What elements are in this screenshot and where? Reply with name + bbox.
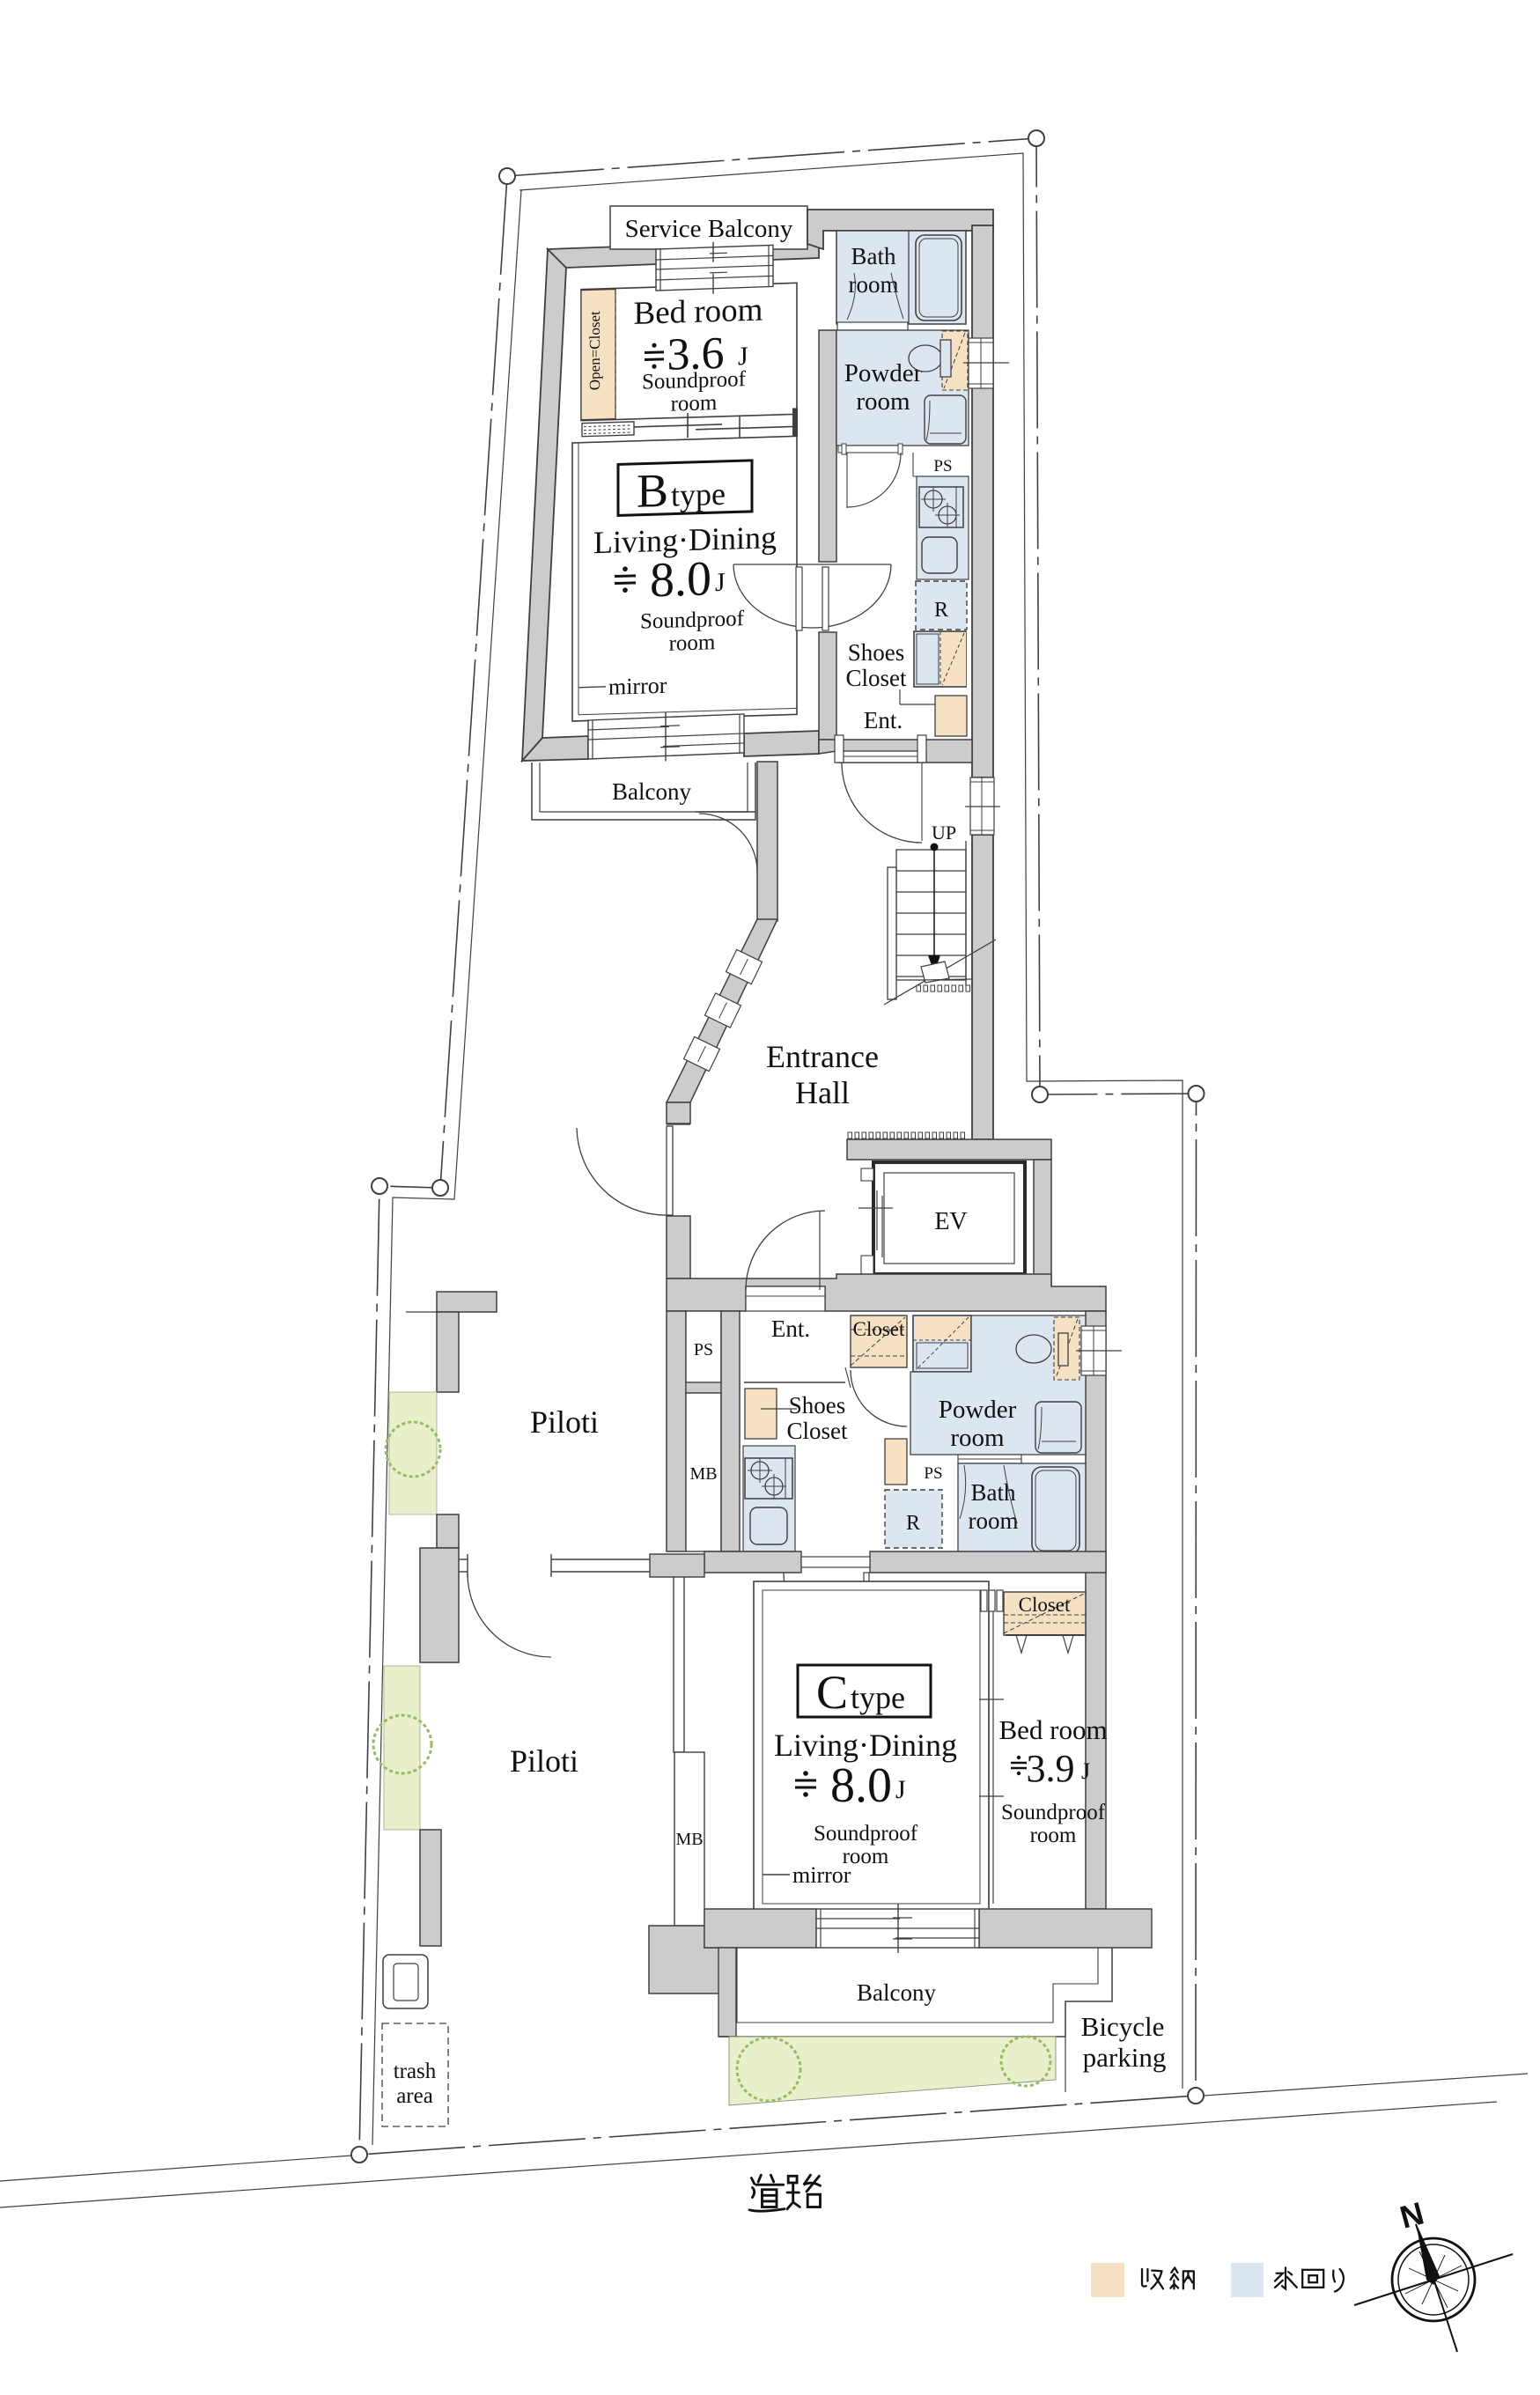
svg-text:Powder: Powder xyxy=(939,1396,1017,1424)
svg-text:Soundproof: Soundproof xyxy=(814,1822,918,1846)
svg-text:room: room xyxy=(950,1424,1005,1452)
svg-text:R: R xyxy=(934,599,948,622)
svg-text:3.9: 3.9 xyxy=(1027,1747,1075,1790)
svg-text:J: J xyxy=(715,568,726,597)
svg-text:room: room xyxy=(669,630,716,656)
svg-text:PS: PS xyxy=(694,1340,713,1360)
svg-text:UP: UP xyxy=(932,822,956,844)
svg-text:C: C xyxy=(816,1666,848,1719)
svg-text:Soundproof: Soundproof xyxy=(640,607,745,634)
svg-text:parking: parking xyxy=(1083,2042,1167,2073)
svg-text:EV: EV xyxy=(934,1208,967,1235)
svg-text:Bed room: Bed room xyxy=(634,292,763,332)
svg-text:Closet: Closet xyxy=(1019,1594,1071,1616)
svg-text:Shoes: Shoes xyxy=(848,639,905,666)
svg-text:Soundproof: Soundproof xyxy=(1001,1801,1106,1824)
svg-text:Soundproof: Soundproof xyxy=(642,367,747,394)
svg-text:Living·Dining: Living·Dining xyxy=(774,1728,957,1763)
svg-text:Open=Closet: Open=Closet xyxy=(586,311,603,391)
svg-text:PS: PS xyxy=(933,457,952,475)
svg-text:Ent.: Ent. xyxy=(864,707,903,733)
svg-text:Bed room: Bed room xyxy=(998,1714,1107,1745)
svg-text:type: type xyxy=(671,476,726,513)
svg-text:J: J xyxy=(895,1775,906,1804)
svg-text:Closet: Closet xyxy=(845,665,907,691)
svg-text:room: room xyxy=(969,1507,1019,1534)
svg-text:Shoes: Shoes xyxy=(789,1392,846,1419)
svg-text:room: room xyxy=(856,387,910,416)
svg-text:Bicycle: Bicycle xyxy=(1081,2011,1165,2042)
svg-text:Closet: Closet xyxy=(786,1418,848,1444)
svg-text:room: room xyxy=(849,271,899,298)
svg-text:mirror: mirror xyxy=(608,673,667,700)
svg-text:room: room xyxy=(671,391,718,416)
svg-text:Ent.: Ent. xyxy=(771,1315,810,1342)
svg-text:area: area xyxy=(396,2084,433,2108)
svg-text:Balcony: Balcony xyxy=(612,778,691,805)
svg-text:R: R xyxy=(906,1512,920,1535)
svg-text:PS: PS xyxy=(924,1464,942,1483)
svg-text:room: room xyxy=(1030,1824,1077,1847)
svg-text:8.0: 8.0 xyxy=(650,551,711,608)
svg-text:J: J xyxy=(1081,1758,1090,1784)
svg-text:Entrance: Entrance xyxy=(766,1039,879,1074)
svg-text:Closet: Closet xyxy=(853,1318,905,1340)
svg-text:8.0: 8.0 xyxy=(830,1758,892,1813)
svg-text:Piloti: Piloti xyxy=(530,1404,599,1440)
svg-text:mirror: mirror xyxy=(792,1862,851,1888)
svg-text:B: B xyxy=(637,464,668,518)
svg-text:Hall: Hall xyxy=(795,1075,850,1110)
svg-text:type: type xyxy=(851,1680,905,1715)
svg-text:MB: MB xyxy=(689,1464,717,1484)
svg-text:Balcony: Balcony xyxy=(857,1979,936,2006)
svg-text:Piloti: Piloti xyxy=(510,1743,578,1779)
svg-text:Bath: Bath xyxy=(851,243,896,269)
svg-text:MB: MB xyxy=(675,1830,703,1849)
svg-text:Service Balcony: Service Balcony xyxy=(625,215,793,243)
svg-text:trash: trash xyxy=(394,2060,437,2083)
